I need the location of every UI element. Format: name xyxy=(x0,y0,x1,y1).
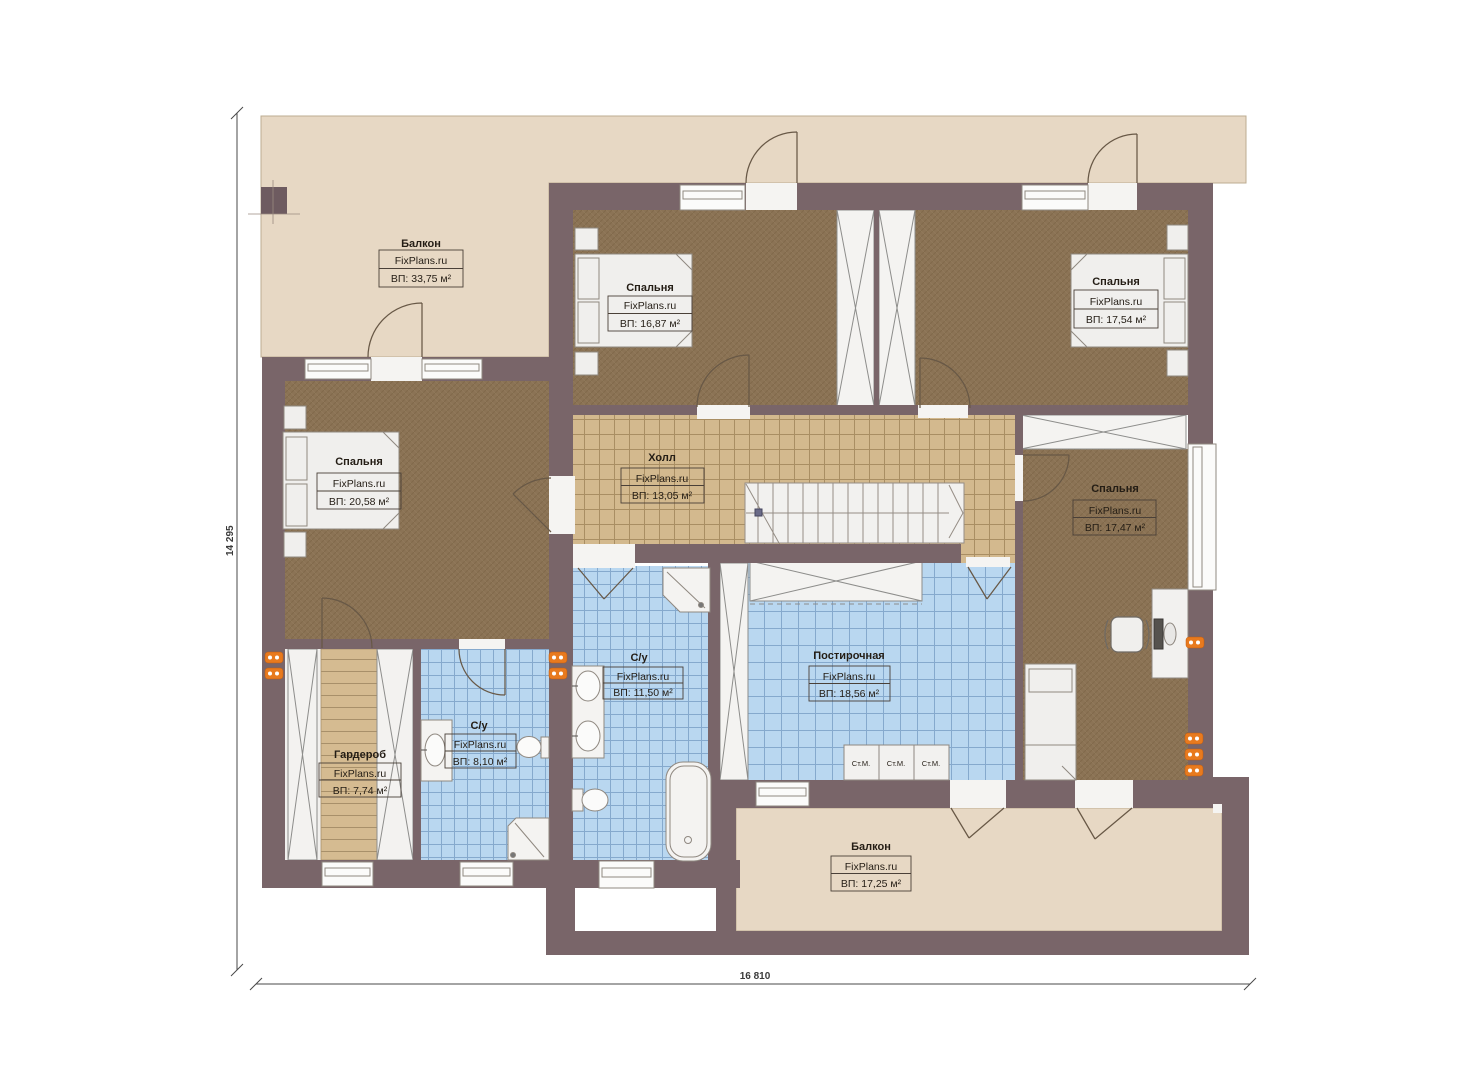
svg-text:FixPlans.ru: FixPlans.ru xyxy=(334,768,387,780)
svg-text:FixPlans.ru: FixPlans.ru xyxy=(1090,296,1143,308)
svg-text:Спальня: Спальня xyxy=(1092,276,1140,288)
svg-text:Ст.М.: Ст.М. xyxy=(887,759,905,768)
svg-text:Ст.М.: Ст.М. xyxy=(922,759,940,768)
svg-text:FixPlans.ru: FixPlans.ru xyxy=(617,671,670,683)
svg-text:ВП: 7,74 м²: ВП: 7,74 м² xyxy=(333,785,388,797)
svg-text:ВП: 17,54 м²: ВП: 17,54 м² xyxy=(1086,314,1147,326)
svg-text:Балкон: Балкон xyxy=(401,238,441,250)
svg-text:FixPlans.ru: FixPlans.ru xyxy=(636,473,689,485)
svg-text:С/у: С/у xyxy=(470,720,488,732)
svg-text:FixPlans.ru: FixPlans.ru xyxy=(823,671,876,683)
svg-text:Постирочная: Постирочная xyxy=(813,650,884,662)
svg-text:ВП: 33,75 м²: ВП: 33,75 м² xyxy=(391,273,452,285)
svg-text:ВП: 8,10 м²: ВП: 8,10 м² xyxy=(453,756,508,768)
svg-text:FixPlans.ru: FixPlans.ru xyxy=(624,300,677,312)
svg-text:Спальня: Спальня xyxy=(1091,483,1139,495)
svg-text:ВП: 13,05 м²: ВП: 13,05 м² xyxy=(632,490,693,502)
svg-text:Холл: Холл xyxy=(648,452,676,464)
svg-text:Балкон: Балкон xyxy=(851,841,891,853)
svg-text:ВП: 11,50 м²: ВП: 11,50 м² xyxy=(613,687,673,699)
svg-text:Спальня: Спальня xyxy=(626,282,674,294)
svg-text:ВП: 16,87 м²: ВП: 16,87 м² xyxy=(620,318,681,330)
svg-text:16 810: 16 810 xyxy=(740,971,771,982)
svg-text:ВП: 17,25 м²: ВП: 17,25 м² xyxy=(841,878,902,890)
svg-text:FixPlans.ru: FixPlans.ru xyxy=(845,861,898,873)
svg-text:FixPlans.ru: FixPlans.ru xyxy=(454,739,507,751)
svg-text:14 295: 14 295 xyxy=(225,525,236,556)
svg-text:Ст.М.: Ст.М. xyxy=(852,759,870,768)
svg-text:Спальня: Спальня xyxy=(335,456,383,468)
svg-text:ВП: 20,58 м²: ВП: 20,58 м² xyxy=(329,496,390,508)
svg-text:FixPlans.ru: FixPlans.ru xyxy=(1089,505,1142,517)
svg-text:ВП: 17,47 м²: ВП: 17,47 м² xyxy=(1085,522,1146,534)
svg-text:FixPlans.ru: FixPlans.ru xyxy=(333,478,386,490)
svg-text:Гардероб: Гардероб xyxy=(334,749,386,761)
svg-text:С/у: С/у xyxy=(630,652,648,664)
svg-text:FixPlans.ru: FixPlans.ru xyxy=(395,255,448,267)
svg-text:ВП: 18,56 м²: ВП: 18,56 м² xyxy=(819,688,880,700)
